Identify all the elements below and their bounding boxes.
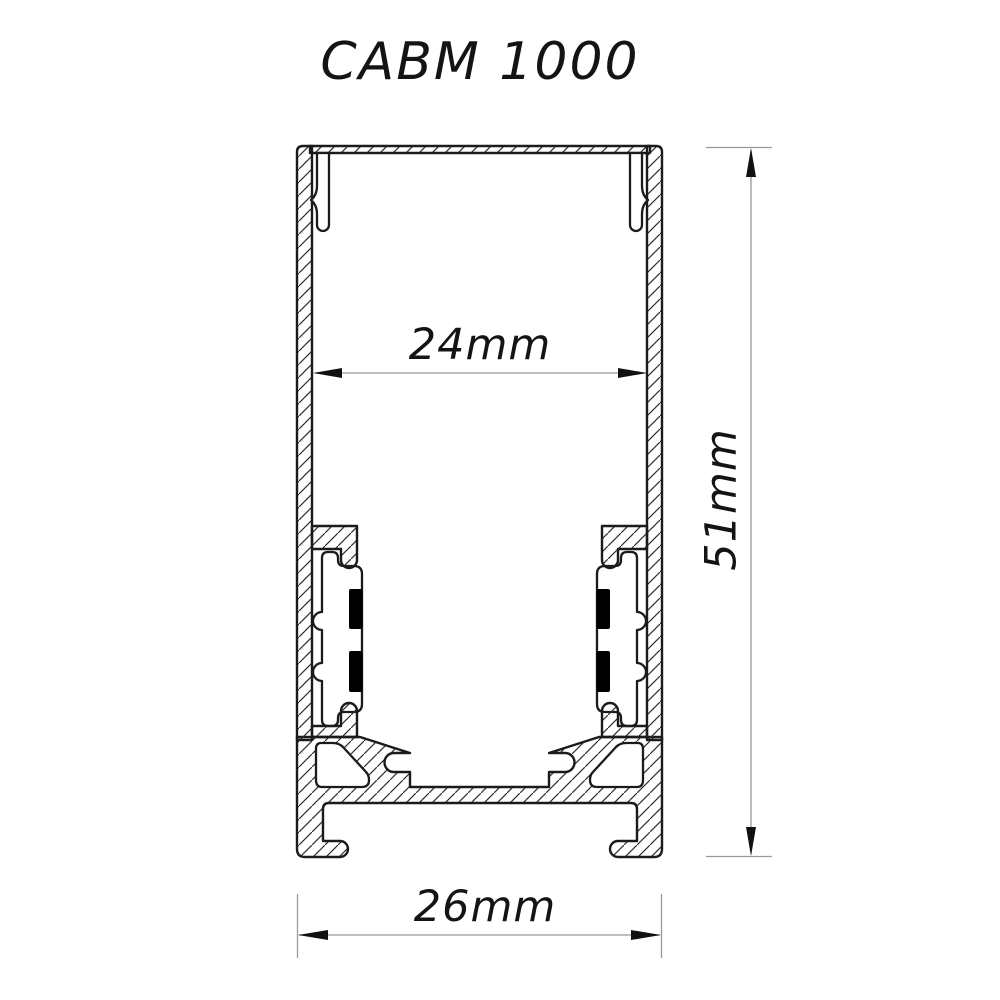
arrowhead-right xyxy=(618,368,647,378)
technical-drawing-page: CABM 1000 24mm 51mm 26mm xyxy=(0,0,1000,1000)
right-clip-tower xyxy=(597,552,646,726)
arrowhead-left xyxy=(298,930,328,940)
profile-cross-section xyxy=(297,146,662,857)
right-side xyxy=(590,146,662,787)
drawing-title: CABM 1000 xyxy=(320,36,640,88)
left-strip-pad-bottom xyxy=(349,651,363,692)
right-wall xyxy=(647,146,662,740)
left-clip-tower xyxy=(313,552,362,726)
arrowhead-bottom xyxy=(746,827,756,856)
arrowhead-top xyxy=(746,148,756,177)
left-cover-lip xyxy=(311,153,329,231)
arrowhead-right xyxy=(631,930,661,940)
profile-drawing xyxy=(0,0,1000,1000)
dimension-label-inner-width: 24mm xyxy=(380,324,580,367)
top-cap xyxy=(310,146,650,153)
right-strip-pad-bottom xyxy=(597,651,611,692)
dimension-label-outer-width: 26mm xyxy=(385,886,585,929)
dimension-label-height: 51mm xyxy=(701,400,744,600)
right-cover-lip xyxy=(630,153,648,231)
left-strip-pad-top xyxy=(349,589,363,629)
left-side xyxy=(297,146,369,787)
left-wall xyxy=(297,146,312,740)
right-strip-pad-top xyxy=(597,589,611,629)
arrowhead-left xyxy=(313,368,342,378)
